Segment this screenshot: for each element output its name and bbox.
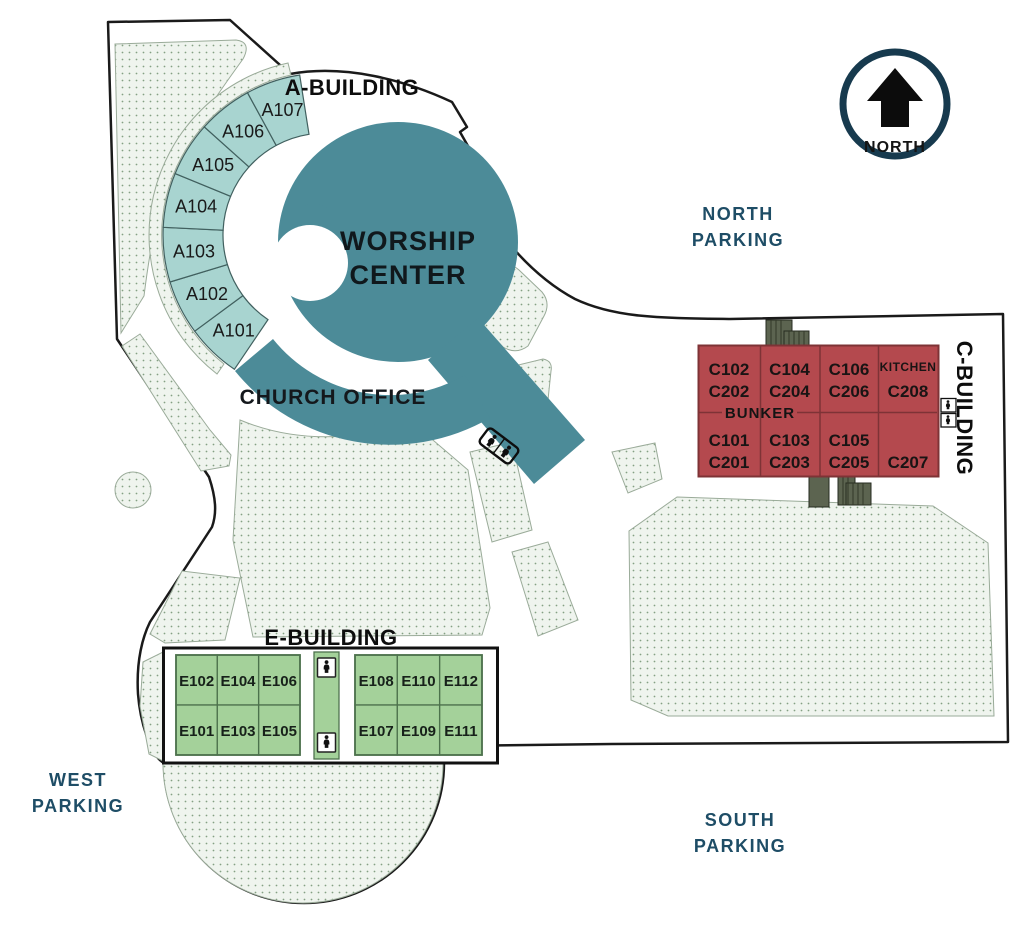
room-label-c203: C203 [769, 453, 810, 472]
room-label-e112: E112 [444, 673, 478, 690]
a-building-title: A-BUILDING [285, 75, 420, 100]
compass: NORTH [843, 52, 947, 156]
e-building-title: E-BUILDING [264, 625, 397, 650]
lawn-small-circle [115, 472, 151, 508]
west-parking-label-line1: WEST [49, 770, 107, 790]
room-label-e101: E101 [179, 723, 214, 740]
room-label-e109: E109 [401, 723, 436, 740]
room-label-a105: A105 [192, 155, 234, 175]
room-label-c101: C101 [709, 431, 750, 450]
room-label-a104: A104 [175, 196, 217, 216]
room-label-a107: A107 [261, 100, 303, 120]
room-label-c208: C208 [888, 382, 929, 401]
north-parking-label-line2: PARKING [692, 230, 784, 250]
room-label-e106: E106 [262, 673, 297, 690]
room-label-e111: E111 [444, 723, 477, 740]
room-label-c204: C204 [769, 382, 810, 401]
room-label-e107: E107 [359, 723, 394, 740]
room-label-c106: C106 [829, 360, 870, 379]
lawn-south-circle [163, 763, 443, 903]
room-label-c105: C105 [829, 431, 870, 450]
room-label-a102: A102 [186, 284, 228, 304]
room-label-a106: A106 [222, 122, 264, 142]
lawn-platform-left-strip [140, 652, 163, 761]
room-label-c206: C206 [829, 382, 870, 401]
room-label-e103: E103 [220, 723, 255, 740]
south-parking-label-line1: SOUTH [705, 810, 776, 830]
room-label-e105: E105 [262, 723, 297, 740]
lawn-east-large [629, 497, 994, 716]
c-building-title: C-BUILDING [952, 341, 977, 476]
room-label-c102: C102 [709, 360, 750, 379]
church-office-label: CHURCH OFFICE [240, 386, 427, 409]
room-label-e110: E110 [401, 673, 435, 690]
room-label-c205: C205 [829, 453, 870, 472]
room-label-c104: C104 [769, 360, 810, 379]
north-parking-label-line1: NORTH [702, 204, 774, 224]
campus-map: A101A102A103A104A105A106A107 C102C202C10… [0, 0, 1024, 926]
room-label-e102: E102 [179, 673, 214, 690]
room-label-e108: E108 [359, 673, 394, 690]
room-label-e104: E104 [220, 673, 256, 690]
lawn-southwest-wedge [150, 571, 240, 643]
worship-center-label-line1: WORSHIP [340, 226, 476, 256]
west-parking-label-line2: PARKING [32, 796, 124, 816]
room-label-c207: C207 [888, 453, 929, 472]
room-label-c202: C202 [709, 382, 750, 401]
room-label-c201: C201 [709, 453, 750, 472]
room-label-c103: C103 [769, 431, 810, 450]
south-parking-label-line2: PARKING [694, 836, 786, 856]
room-label-kitchen: KITCHEN [880, 360, 937, 374]
bunker-label: BUNKER [725, 405, 795, 422]
worship-center-courtyard [272, 225, 348, 301]
compass-north-label: NORTH [864, 139, 926, 156]
room-label-a101: A101 [213, 320, 255, 340]
campus-map-page: A101A102A103A104A105A106A107 C102C202C10… [0, 0, 1024, 926]
room-label-a103: A103 [173, 241, 215, 261]
worship-center-label-line2: CENTER [349, 260, 466, 290]
